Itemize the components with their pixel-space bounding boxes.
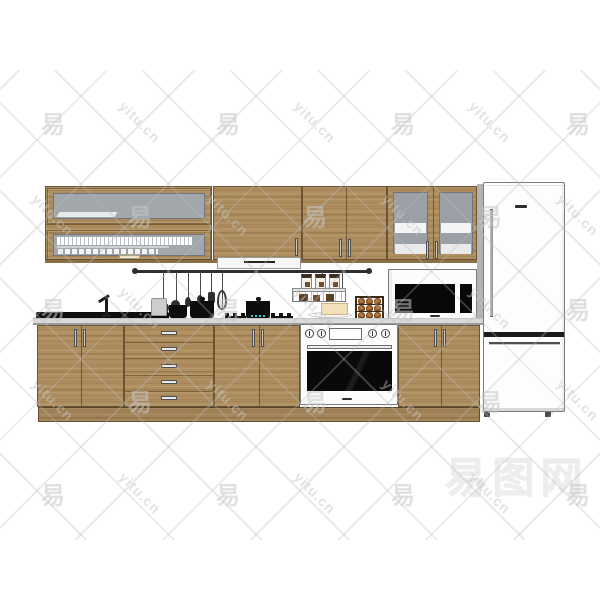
fridge-bottom-strip xyxy=(484,408,564,411)
base-cabinet-middle xyxy=(214,325,300,407)
glass-pane-top xyxy=(53,193,205,219)
bread-loaf xyxy=(374,298,381,304)
door-seam xyxy=(259,326,260,406)
rail-end-cap-right xyxy=(366,268,372,274)
jar-label xyxy=(319,282,324,287)
knob-marker xyxy=(385,331,386,336)
door-handle-left xyxy=(339,239,342,257)
watermark-url-text: yitu.cn xyxy=(466,98,514,146)
spice-jar xyxy=(315,274,326,289)
shelf-post-right xyxy=(342,272,343,289)
spoon2-stem xyxy=(200,272,201,296)
fridge-door-handle xyxy=(490,209,493,317)
glass-pane-bottom xyxy=(53,234,205,256)
door-handle-right xyxy=(83,329,86,347)
door-seam xyxy=(433,187,434,259)
fridge-top-line xyxy=(485,185,563,186)
bread-loaf xyxy=(358,305,365,311)
drawer-handle-1 xyxy=(161,331,177,335)
hanging-shelf-basket xyxy=(292,292,346,302)
spice-jar xyxy=(329,274,340,289)
door-handle-left xyxy=(426,241,429,259)
kitchen-elevation-render: 易yitu.cn易yitu.cn易yitu.cn易yitu.cn易yitu.cn… xyxy=(0,0,600,600)
door-seam xyxy=(441,326,442,406)
basket-item xyxy=(326,294,334,301)
shelf-contents-band xyxy=(441,223,471,233)
glass-reflection xyxy=(57,212,118,217)
base-cabinet-left xyxy=(37,325,124,407)
faucet xyxy=(96,292,116,318)
door-seam xyxy=(81,326,82,406)
pot-lid-knob xyxy=(200,297,205,301)
faucet-column xyxy=(105,298,108,315)
door-handle xyxy=(295,238,298,256)
countertop xyxy=(33,318,483,325)
microwave-side-shade xyxy=(389,270,392,319)
plate-rack xyxy=(57,237,192,245)
fridge-freezer-divider xyxy=(484,332,564,337)
glass-flip-door-bottom xyxy=(47,230,211,260)
watermark-glyph: 易 xyxy=(41,476,65,511)
watermark-glyph: 易 xyxy=(216,105,240,140)
watermark-glyph: 易 xyxy=(566,105,590,140)
fridge-logo xyxy=(515,205,527,208)
door-handle-right xyxy=(261,329,264,347)
watermark-glyph: 易 xyxy=(216,476,240,511)
door-handle-right xyxy=(348,239,351,257)
oven-knob xyxy=(317,329,326,338)
pot-lid-knob xyxy=(256,297,261,301)
faucet-base xyxy=(102,314,111,317)
door-handle-right xyxy=(435,241,438,259)
whisk-icon xyxy=(217,290,227,310)
microwave xyxy=(388,269,477,320)
cabinet-rail-line xyxy=(46,224,211,225)
microwave-logo xyxy=(430,315,440,317)
wall-cabinet-over-hood xyxy=(213,186,302,260)
watermark-url-text: yitu.cn xyxy=(116,98,164,146)
cup-row xyxy=(58,249,158,254)
oven xyxy=(300,324,398,405)
rail-end-cap-left xyxy=(132,268,138,274)
bread-row xyxy=(357,298,382,305)
basket-item xyxy=(313,295,320,301)
wall-cabinet-glass-right xyxy=(387,186,477,260)
bread-loaf xyxy=(366,305,373,311)
knob-marker xyxy=(309,331,310,336)
microwave-window xyxy=(395,284,455,313)
drawer-handle-4 xyxy=(161,380,177,384)
oven-logo xyxy=(342,398,352,400)
watermark-glyph: 易 xyxy=(566,476,590,511)
drawer-line xyxy=(125,375,213,376)
spice-jar xyxy=(301,274,312,289)
microwave-control-panel xyxy=(460,284,472,313)
bread-loaf xyxy=(358,298,365,304)
shelf-contents-band xyxy=(395,244,426,254)
wall-cabinet-double xyxy=(302,186,387,260)
oven-window xyxy=(307,351,392,391)
rack-rail xyxy=(57,246,169,248)
freezer-handle xyxy=(489,342,560,345)
glass-flip-door-top xyxy=(47,188,211,224)
watermark-url-text: yitu.cn xyxy=(466,469,514,517)
whisk-wire xyxy=(222,292,223,308)
drawer-handle-3 xyxy=(161,364,177,368)
oven-handle xyxy=(307,345,392,349)
wall-cabinet-glass-left xyxy=(45,186,212,260)
jar-label xyxy=(305,282,310,287)
drawer-line xyxy=(125,342,213,343)
small-pot xyxy=(169,305,187,318)
bread-rack xyxy=(355,296,384,320)
fridge-right-shade xyxy=(562,183,564,411)
door-handle-right xyxy=(443,329,446,347)
whisk-stem xyxy=(222,272,223,291)
cheese-block xyxy=(321,303,348,315)
door-seam xyxy=(346,187,347,259)
bread-loaf xyxy=(374,305,381,311)
bread-loaf xyxy=(366,298,373,304)
jar-label xyxy=(333,282,338,287)
watermark-glyph: 易 xyxy=(41,105,65,140)
fridge-foot-right xyxy=(545,412,551,417)
bread-row xyxy=(357,305,382,312)
basket-item xyxy=(299,294,308,301)
oven-display xyxy=(329,328,362,340)
shelf-contents-band xyxy=(441,244,471,254)
watermark-glyph: 易 xyxy=(391,476,415,511)
shelf-contents-band xyxy=(395,223,426,233)
glass-pane-right xyxy=(439,192,473,254)
gas-flames xyxy=(251,315,266,317)
refrigerator xyxy=(483,182,565,412)
fridge-foot-left xyxy=(484,412,490,417)
range-hood xyxy=(217,257,301,269)
door-handle-left xyxy=(74,329,77,347)
oven-knob xyxy=(305,329,314,338)
utensil-crock xyxy=(151,298,167,316)
base-plinth xyxy=(38,407,480,422)
watermark-glyph: 易 xyxy=(566,291,590,326)
watermark-glyph: 易 xyxy=(391,105,415,140)
base-drawer-stack xyxy=(124,325,214,407)
drawer-line xyxy=(125,391,213,392)
glass-pane-left xyxy=(393,192,428,254)
faucet-spout xyxy=(98,294,110,303)
medium-pot xyxy=(190,301,214,318)
utensil-rail xyxy=(135,270,372,273)
watermark-url-text: yitu.cn xyxy=(291,469,339,517)
watermark-big-text: 易图网 xyxy=(444,444,588,505)
oven-knob xyxy=(381,329,390,338)
spoon-stem xyxy=(188,272,189,298)
spatula-stem xyxy=(211,272,212,293)
door-handle-cream xyxy=(119,255,140,259)
drawer-line xyxy=(125,358,213,359)
watermark-url-text: yitu.cn xyxy=(116,469,164,517)
oven-knob xyxy=(368,329,377,338)
hood-vent-slot xyxy=(244,261,275,263)
watermark-url-text: yitu.cn xyxy=(291,98,339,146)
drawer-handle-5 xyxy=(161,396,177,400)
knob-marker xyxy=(321,331,322,336)
base-cabinet-right xyxy=(398,325,480,407)
knob-marker xyxy=(372,331,373,336)
door-handle-left xyxy=(252,329,255,347)
door-handle-left xyxy=(434,329,437,347)
ladle-stem xyxy=(176,272,177,301)
drawer-handle-2 xyxy=(161,347,177,351)
